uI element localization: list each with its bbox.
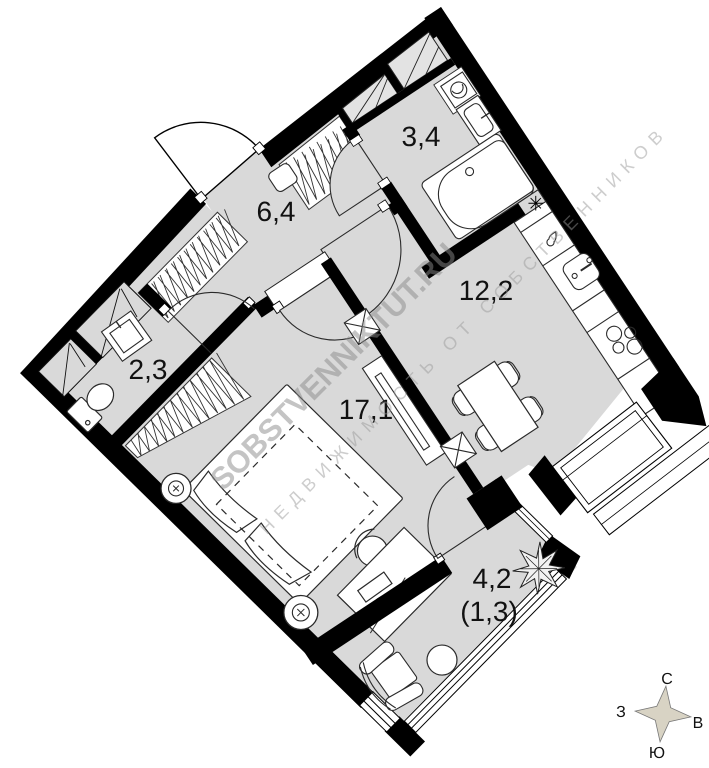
svg-text:3,4: 3,4: [402, 121, 441, 152]
svg-text:Ю: Ю: [649, 745, 665, 762]
svg-text:6,4: 6,4: [257, 196, 296, 227]
svg-text:2,3: 2,3: [129, 354, 168, 385]
svg-text:4,2: 4,2: [473, 563, 512, 594]
svg-text:З: З: [616, 704, 626, 721]
svg-text:✳: ✳: [527, 194, 544, 216]
svg-text:(1,3): (1,3): [460, 596, 518, 627]
svg-text:В: В: [693, 715, 704, 732]
svg-text:С: С: [661, 671, 673, 688]
